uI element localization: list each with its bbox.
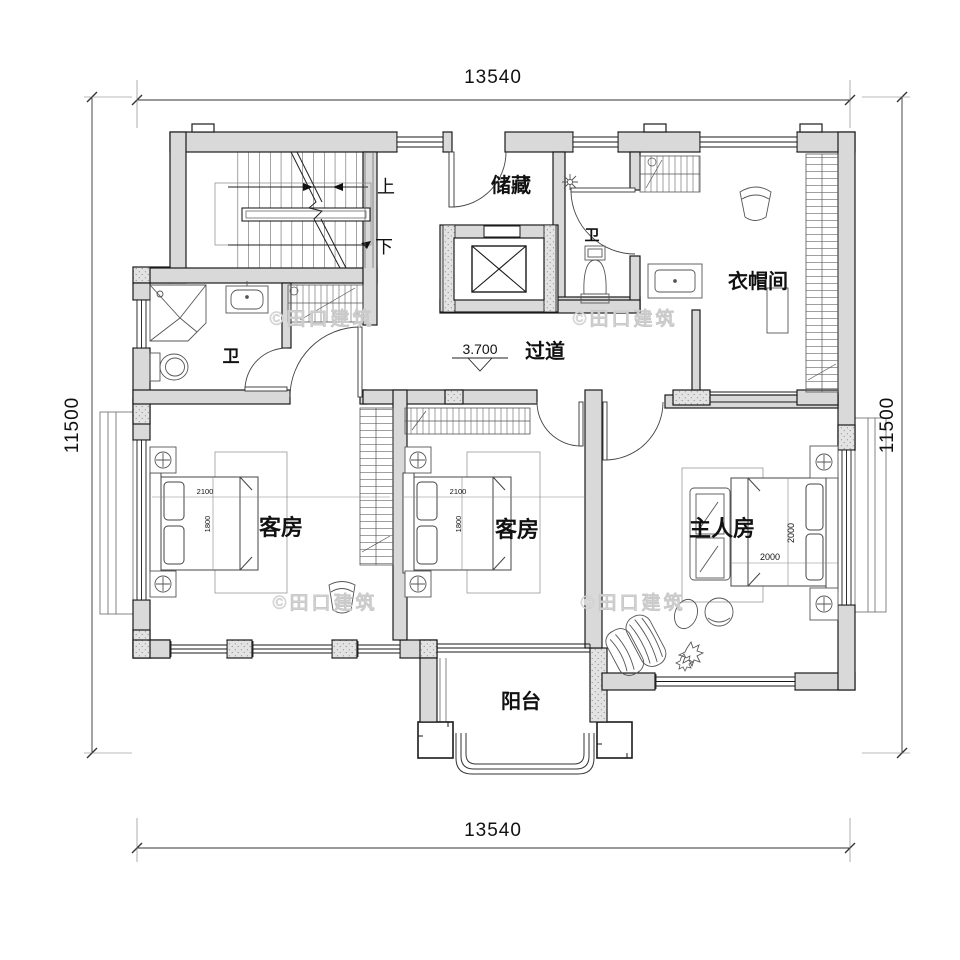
- wardrobe-closet-top: [640, 156, 700, 192]
- stair-up-label: 上: [377, 177, 395, 197]
- lounge-chair: [601, 611, 670, 682]
- bath-left-door: [245, 348, 287, 391]
- elevator-door: [484, 226, 520, 237]
- watermark: ©田口建筑: [573, 307, 678, 330]
- elevation-marker: [452, 358, 508, 371]
- room-label-bath-left: 卫: [223, 347, 240, 366]
- bed-dim: 2100: [197, 487, 214, 496]
- dim-top-label: 13540: [464, 67, 522, 88]
- bed-dim: 2000: [786, 523, 796, 543]
- bed-dim: 2000: [760, 552, 780, 562]
- stair-down-label: 下: [375, 237, 393, 257]
- wardrobe-guest-mid: [405, 408, 530, 434]
- bed-dim: 1800: [454, 516, 463, 533]
- light-icon: [562, 174, 578, 190]
- bed-headboard: [826, 472, 838, 592]
- closet-chair: [740, 187, 771, 221]
- stairs: [215, 152, 373, 268]
- balcony-column-left: [418, 722, 453, 758]
- sink-left-bath: [226, 281, 268, 313]
- room-label-guest-mid: 客房: [495, 517, 539, 542]
- pillow: [417, 482, 437, 520]
- elevator: [440, 225, 558, 312]
- room-label-guest-left: 客房: [259, 515, 303, 540]
- master-door: [603, 402, 663, 460]
- guest-mid-door: [537, 402, 583, 446]
- bay-window-left: [100, 412, 133, 614]
- floor-plan-canvas: { "plan": { "dims": { "top": "13540", "b…: [0, 0, 960, 960]
- wardrobe-closet-right: [806, 154, 838, 392]
- guest-left-furniture: [150, 447, 355, 613]
- pillow: [806, 484, 823, 530]
- balcony-railing: [456, 733, 594, 774]
- room-label-storage: 储藏: [491, 173, 531, 197]
- shower: [150, 285, 206, 341]
- watermark: ©田口建筑: [273, 591, 378, 614]
- pillow: [164, 526, 184, 564]
- guest-left-door: [290, 327, 362, 397]
- elevation-value: 3.700: [462, 341, 497, 357]
- room-label-closet: 衣帽间: [728, 269, 788, 293]
- room-label-balcony: 阳台: [501, 689, 541, 713]
- dim-bottom-label: 13540: [464, 820, 522, 841]
- room-label-corridor: 过道: [525, 339, 565, 363]
- floor-plan-drawing: 13540 13540 11500 11500 储藏 卫 衣帽间 过道 卫 客房…: [0, 0, 960, 960]
- dim-left-label: 11500: [62, 397, 83, 453]
- wardrobe-guest-left: [360, 408, 393, 565]
- pillow: [164, 482, 184, 520]
- bath-top-door: [571, 188, 635, 254]
- dim-right-label: 11500: [877, 397, 898, 453]
- dimension-lines: [84, 80, 910, 862]
- room-label-master: 主人房: [689, 516, 755, 541]
- bed-dim: 1800: [203, 516, 212, 533]
- pillow: [806, 534, 823, 580]
- bed-dim: 2100: [450, 487, 467, 496]
- watermark: ©田口建筑: [581, 591, 686, 614]
- bath-left-fixtures: [150, 281, 268, 381]
- closet-bench: [767, 288, 788, 333]
- plant: [679, 642, 703, 666]
- closet-vanity: [648, 264, 702, 298]
- bed-headboard: [150, 473, 161, 573]
- watermark: ©田口建筑: [270, 307, 375, 330]
- balcony-column-right: [597, 722, 632, 758]
- bed-headboard: [403, 473, 414, 573]
- room-label-bath-top: 卫: [584, 227, 599, 244]
- pillow: [417, 526, 437, 564]
- master-furniture: [601, 446, 838, 682]
- toilet-left-bath: [150, 353, 188, 381]
- sink-top-bath: [585, 246, 605, 260]
